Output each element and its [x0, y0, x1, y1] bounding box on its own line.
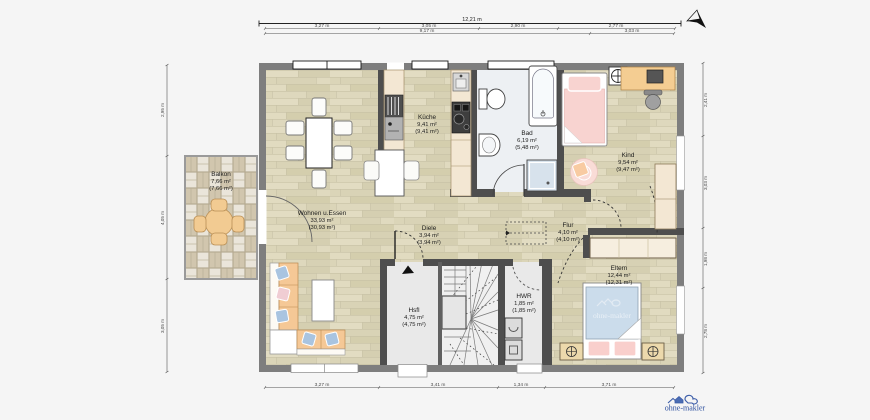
svg-text:4,05 m: 4,05 m: [160, 211, 165, 225]
svg-text:(9,47 m²): (9,47 m²): [616, 167, 640, 173]
svg-text:Diele: Diele: [422, 225, 437, 232]
svg-text:3,05 m: 3,05 m: [160, 319, 165, 333]
svg-text:3,94 m²: 3,94 m²: [419, 233, 439, 239]
svg-text:1,34 m: 1,34 m: [514, 382, 529, 388]
svg-text:(30,93 m²): (30,93 m²): [309, 225, 336, 231]
svg-text:Küche: Küche: [418, 114, 437, 121]
svg-text:1,98 m: 1,98 m: [703, 252, 708, 266]
svg-text:(4,75 m²): (4,75 m²): [402, 322, 426, 328]
svg-text:4,10 m²: 4,10 m²: [558, 230, 578, 236]
svg-text:12,44 m²: 12,44 m²: [608, 273, 631, 279]
svg-text:2,41 m: 2,41 m: [703, 93, 708, 107]
svg-text:Kind: Kind: [622, 152, 635, 159]
svg-text:(1,85 m²): (1,85 m²): [512, 308, 536, 314]
svg-text:(7,66 m²): (7,66 m²): [209, 186, 233, 192]
svg-text:Hsfl: Hsfl: [408, 307, 419, 314]
svg-text:(12,31 m²): (12,31 m²): [606, 280, 633, 286]
svg-text:(5,48 m²): (5,48 m²): [515, 145, 539, 151]
svg-text:9,17 m: 9,17 m: [420, 28, 435, 34]
svg-text:Eltern: Eltern: [611, 265, 628, 272]
svg-text:(3,94 m²): (3,94 m²): [417, 240, 441, 246]
svg-text:12,21 m: 12,21 m: [462, 17, 482, 23]
svg-text:Flur: Flur: [562, 222, 574, 229]
svg-text:Bad: Bad: [521, 130, 533, 137]
svg-text:4,75 m²: 4,75 m²: [404, 315, 424, 321]
svg-text:3,41 m: 3,41 m: [431, 382, 446, 388]
svg-text:(4,10 m²): (4,10 m²): [556, 237, 580, 243]
svg-text:3,71 m: 3,71 m: [602, 382, 617, 388]
svg-text:Wohnen u.Essen: Wohnen u.Essen: [298, 210, 347, 217]
svg-text:1,85 m²: 1,85 m²: [514, 301, 534, 307]
svg-text:(9,41 m²): (9,41 m²): [415, 129, 439, 135]
svg-text:9,41 m²: 9,41 m²: [417, 122, 437, 128]
svg-text:3,03 m: 3,03 m: [625, 28, 640, 34]
svg-text:ohne-makler: ohne-makler: [665, 404, 706, 413]
svg-text:2,78 m: 2,78 m: [703, 324, 708, 338]
svg-text:Balkon: Balkon: [211, 171, 231, 178]
svg-text:2,90 m: 2,90 m: [511, 23, 526, 29]
svg-text:3,27 m: 3,27 m: [315, 382, 330, 388]
svg-text:2,77 m: 2,77 m: [609, 23, 624, 29]
svg-text:2,95 m: 2,95 m: [160, 103, 165, 117]
svg-text:ohne-makler: ohne-makler: [593, 311, 631, 320]
svg-text:6,19 m²: 6,19 m²: [517, 138, 537, 144]
svg-text:HWR: HWR: [516, 293, 532, 300]
svg-text:3,27 m: 3,27 m: [315, 23, 330, 29]
svg-text:3,03 m: 3,03 m: [703, 176, 708, 190]
svg-text:9,54 m²: 9,54 m²: [618, 160, 638, 166]
svg-text:33,93 m²: 33,93 m²: [311, 218, 334, 224]
svg-text:7,66 m²: 7,66 m²: [211, 179, 231, 185]
